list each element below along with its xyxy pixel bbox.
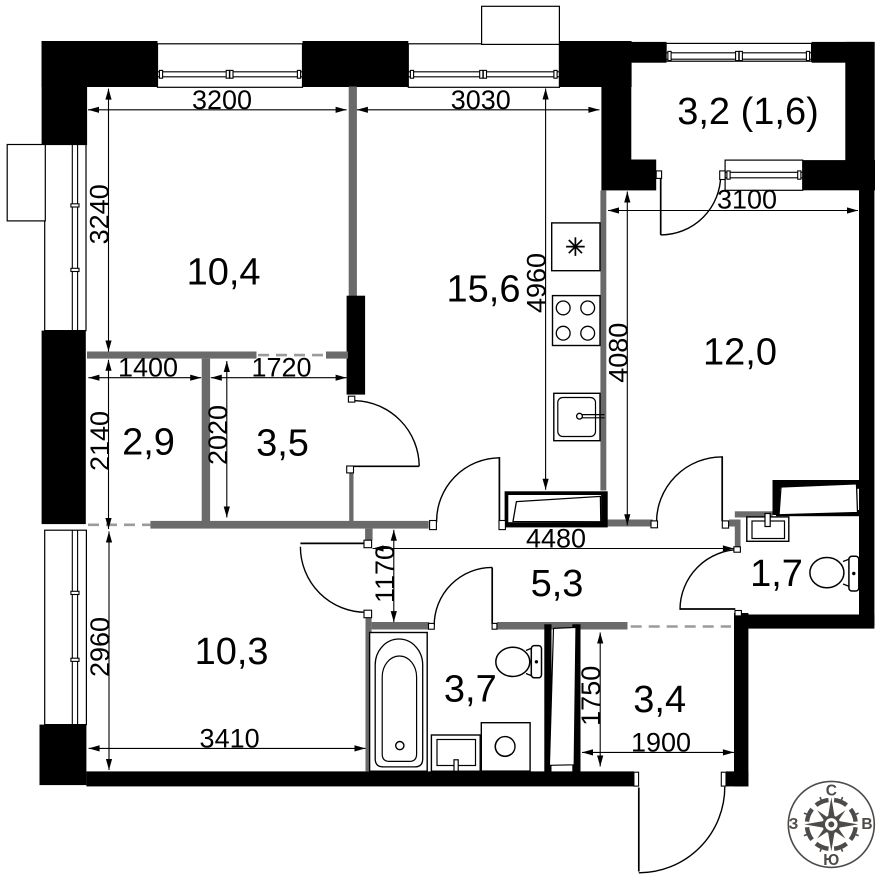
svg-text:З: З [789, 816, 799, 833]
svg-text:3100: 3100 [717, 184, 777, 214]
svg-text:3,4: 3,4 [633, 679, 686, 721]
svg-text:В: В [861, 816, 872, 833]
svg-text:4960: 4960 [522, 253, 552, 313]
svg-text:3,5: 3,5 [256, 423, 309, 465]
svg-text:4080: 4080 [603, 323, 633, 383]
svg-text:1720: 1720 [251, 353, 311, 383]
svg-text:3410: 3410 [200, 723, 260, 753]
svg-text:3,7: 3,7 [444, 668, 497, 710]
svg-text:4480: 4480 [526, 524, 586, 554]
svg-text:3240: 3240 [85, 184, 115, 244]
svg-text:2020: 2020 [203, 405, 233, 465]
svg-text:1400: 1400 [118, 353, 178, 383]
svg-text:2960: 2960 [85, 617, 115, 677]
svg-text:2140: 2140 [85, 411, 115, 471]
svg-text:3200: 3200 [192, 85, 252, 115]
svg-text:С: С [826, 783, 837, 800]
svg-text:15,6: 15,6 [447, 268, 521, 310]
svg-text:1900: 1900 [631, 727, 691, 757]
svg-text:1750: 1750 [576, 666, 606, 726]
svg-text:2,9: 2,9 [122, 422, 175, 464]
svg-text:10,4: 10,4 [187, 251, 261, 293]
svg-text:1,7: 1,7 [750, 553, 803, 595]
svg-text:Ю: Ю [823, 852, 839, 869]
svg-text:1170: 1170 [370, 545, 400, 603]
svg-text:10,3: 10,3 [195, 631, 269, 673]
svg-text:3,2 (1,6): 3,2 (1,6) [677, 91, 819, 133]
svg-text:3030: 3030 [451, 85, 511, 115]
svg-text:5,3: 5,3 [531, 563, 584, 605]
svg-text:12,0: 12,0 [703, 331, 777, 373]
